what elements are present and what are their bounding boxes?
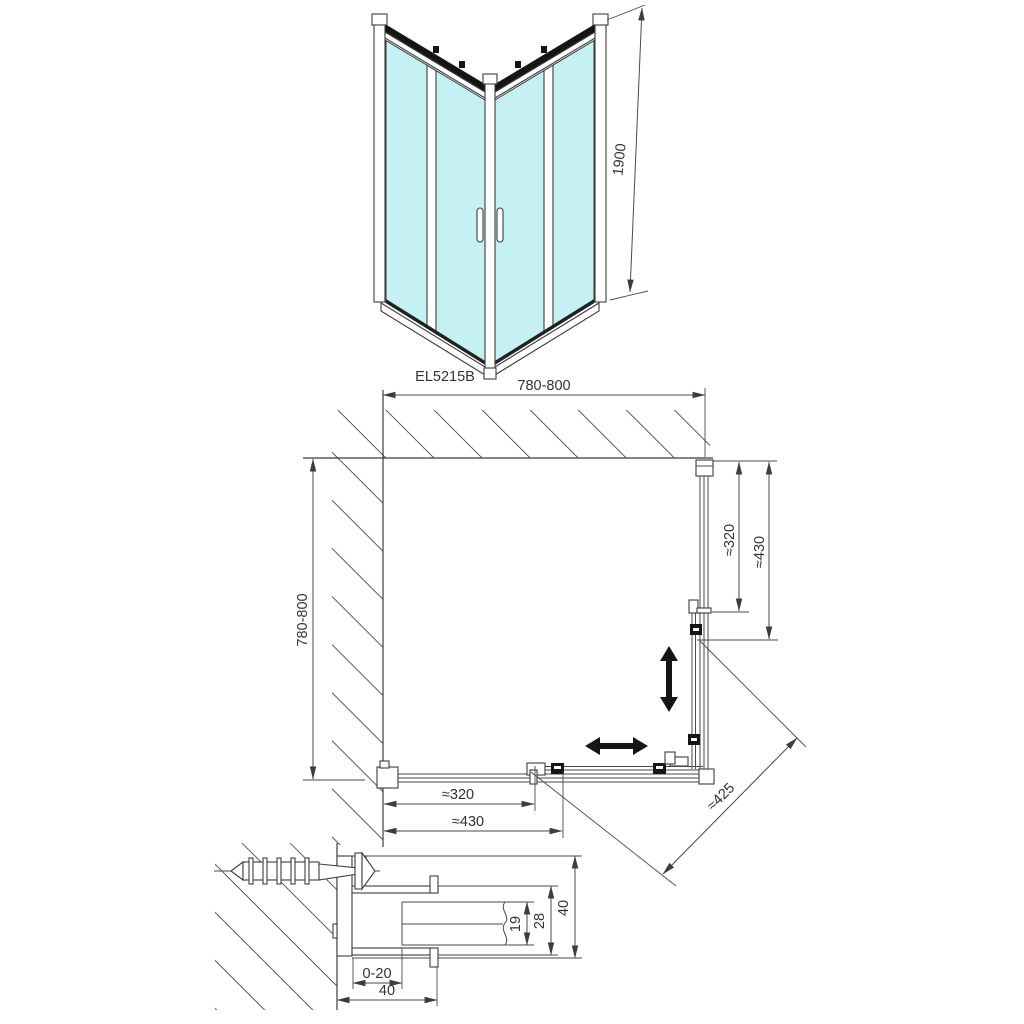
plan-right-outer-label: ≈430 xyxy=(752,536,768,568)
channel-bottom-lip xyxy=(430,948,438,967)
section-adjust-label: 0-20 xyxy=(362,966,391,982)
rail-clip-icon xyxy=(433,46,439,53)
iso-corner-post-cap xyxy=(483,74,497,84)
ext-line xyxy=(700,641,806,747)
channel-top-flange xyxy=(352,886,438,893)
iso-post-right-cap xyxy=(593,14,608,25)
wall-profile-bottom-left xyxy=(377,767,398,788)
slide-arrow-vertical-icon xyxy=(660,646,678,712)
glass-break-line xyxy=(503,902,506,945)
plan-width-label: 780-800 xyxy=(517,378,570,394)
iso-corner-post xyxy=(485,82,495,374)
plan-bottom-outer-label: ≈430 xyxy=(452,814,484,830)
section-inner-label: 28 xyxy=(532,913,548,929)
model-code-label: EL5215B xyxy=(415,369,475,385)
wall-profile-notch xyxy=(333,924,337,938)
channel-top-lip xyxy=(430,876,438,893)
plan-right-glass-run xyxy=(670,460,713,769)
iso-corner-post-foot xyxy=(484,368,496,379)
iso-post-left xyxy=(374,22,385,302)
technical-drawing-page: 1900 EL5215B 780-800 780-800 xyxy=(0,0,1024,1024)
section-height-label: 40 xyxy=(556,900,572,916)
plan-right-inner-label: ≈320 xyxy=(722,524,738,556)
shower-enclosure-drawing: 1900 EL5215B 780-800 780-800 xyxy=(0,0,1024,1024)
door-guide-tab xyxy=(665,752,675,764)
iso-mullion-left xyxy=(427,65,436,333)
rail-clip-icon xyxy=(459,61,465,68)
section-glass-label: 19 xyxy=(508,916,524,932)
corner-post-plan xyxy=(699,769,714,784)
plan-view: 780-800 780-800 xyxy=(295,378,806,886)
section-width-label: 40 xyxy=(379,983,395,999)
channel-bottom-flange xyxy=(352,948,438,955)
plan-depth-label: 780-800 xyxy=(295,593,311,646)
plan-bottom-glass-run xyxy=(377,752,714,788)
iso-glass-panel-right-outer xyxy=(553,41,594,328)
iso-glass-panel-left-outer xyxy=(386,41,427,328)
rail-clip-icon xyxy=(515,61,521,68)
wall-profile-step xyxy=(380,761,389,768)
section-glass-pane xyxy=(402,902,507,945)
iso-height-ext-bottom xyxy=(610,291,648,300)
plan-diagonal-label: ≈425 xyxy=(704,780,738,814)
slide-arrow-horizontal-icon xyxy=(585,737,648,755)
rail-clip-icon xyxy=(541,46,547,53)
iso-post-left-cap xyxy=(372,14,387,25)
iso-height-label: 1900 xyxy=(610,143,629,177)
iso-mullion-right xyxy=(544,65,553,333)
iso-post-right xyxy=(595,22,606,302)
iso-height-ext-top xyxy=(607,5,645,20)
iso-view: 1900 EL5215B xyxy=(372,5,648,385)
door-handle-icon xyxy=(477,208,483,242)
wall-profile-top-right xyxy=(696,460,713,476)
section-view: 0-20 40 19 28 40 xyxy=(214,843,582,1010)
door-handle-icon xyxy=(497,208,503,242)
plan-bottom-inner-label: ≈320 xyxy=(442,787,474,803)
fixed-panel-end-cap xyxy=(697,608,711,613)
ext-line xyxy=(531,772,676,886)
iso-height-dim-line xyxy=(630,8,642,292)
